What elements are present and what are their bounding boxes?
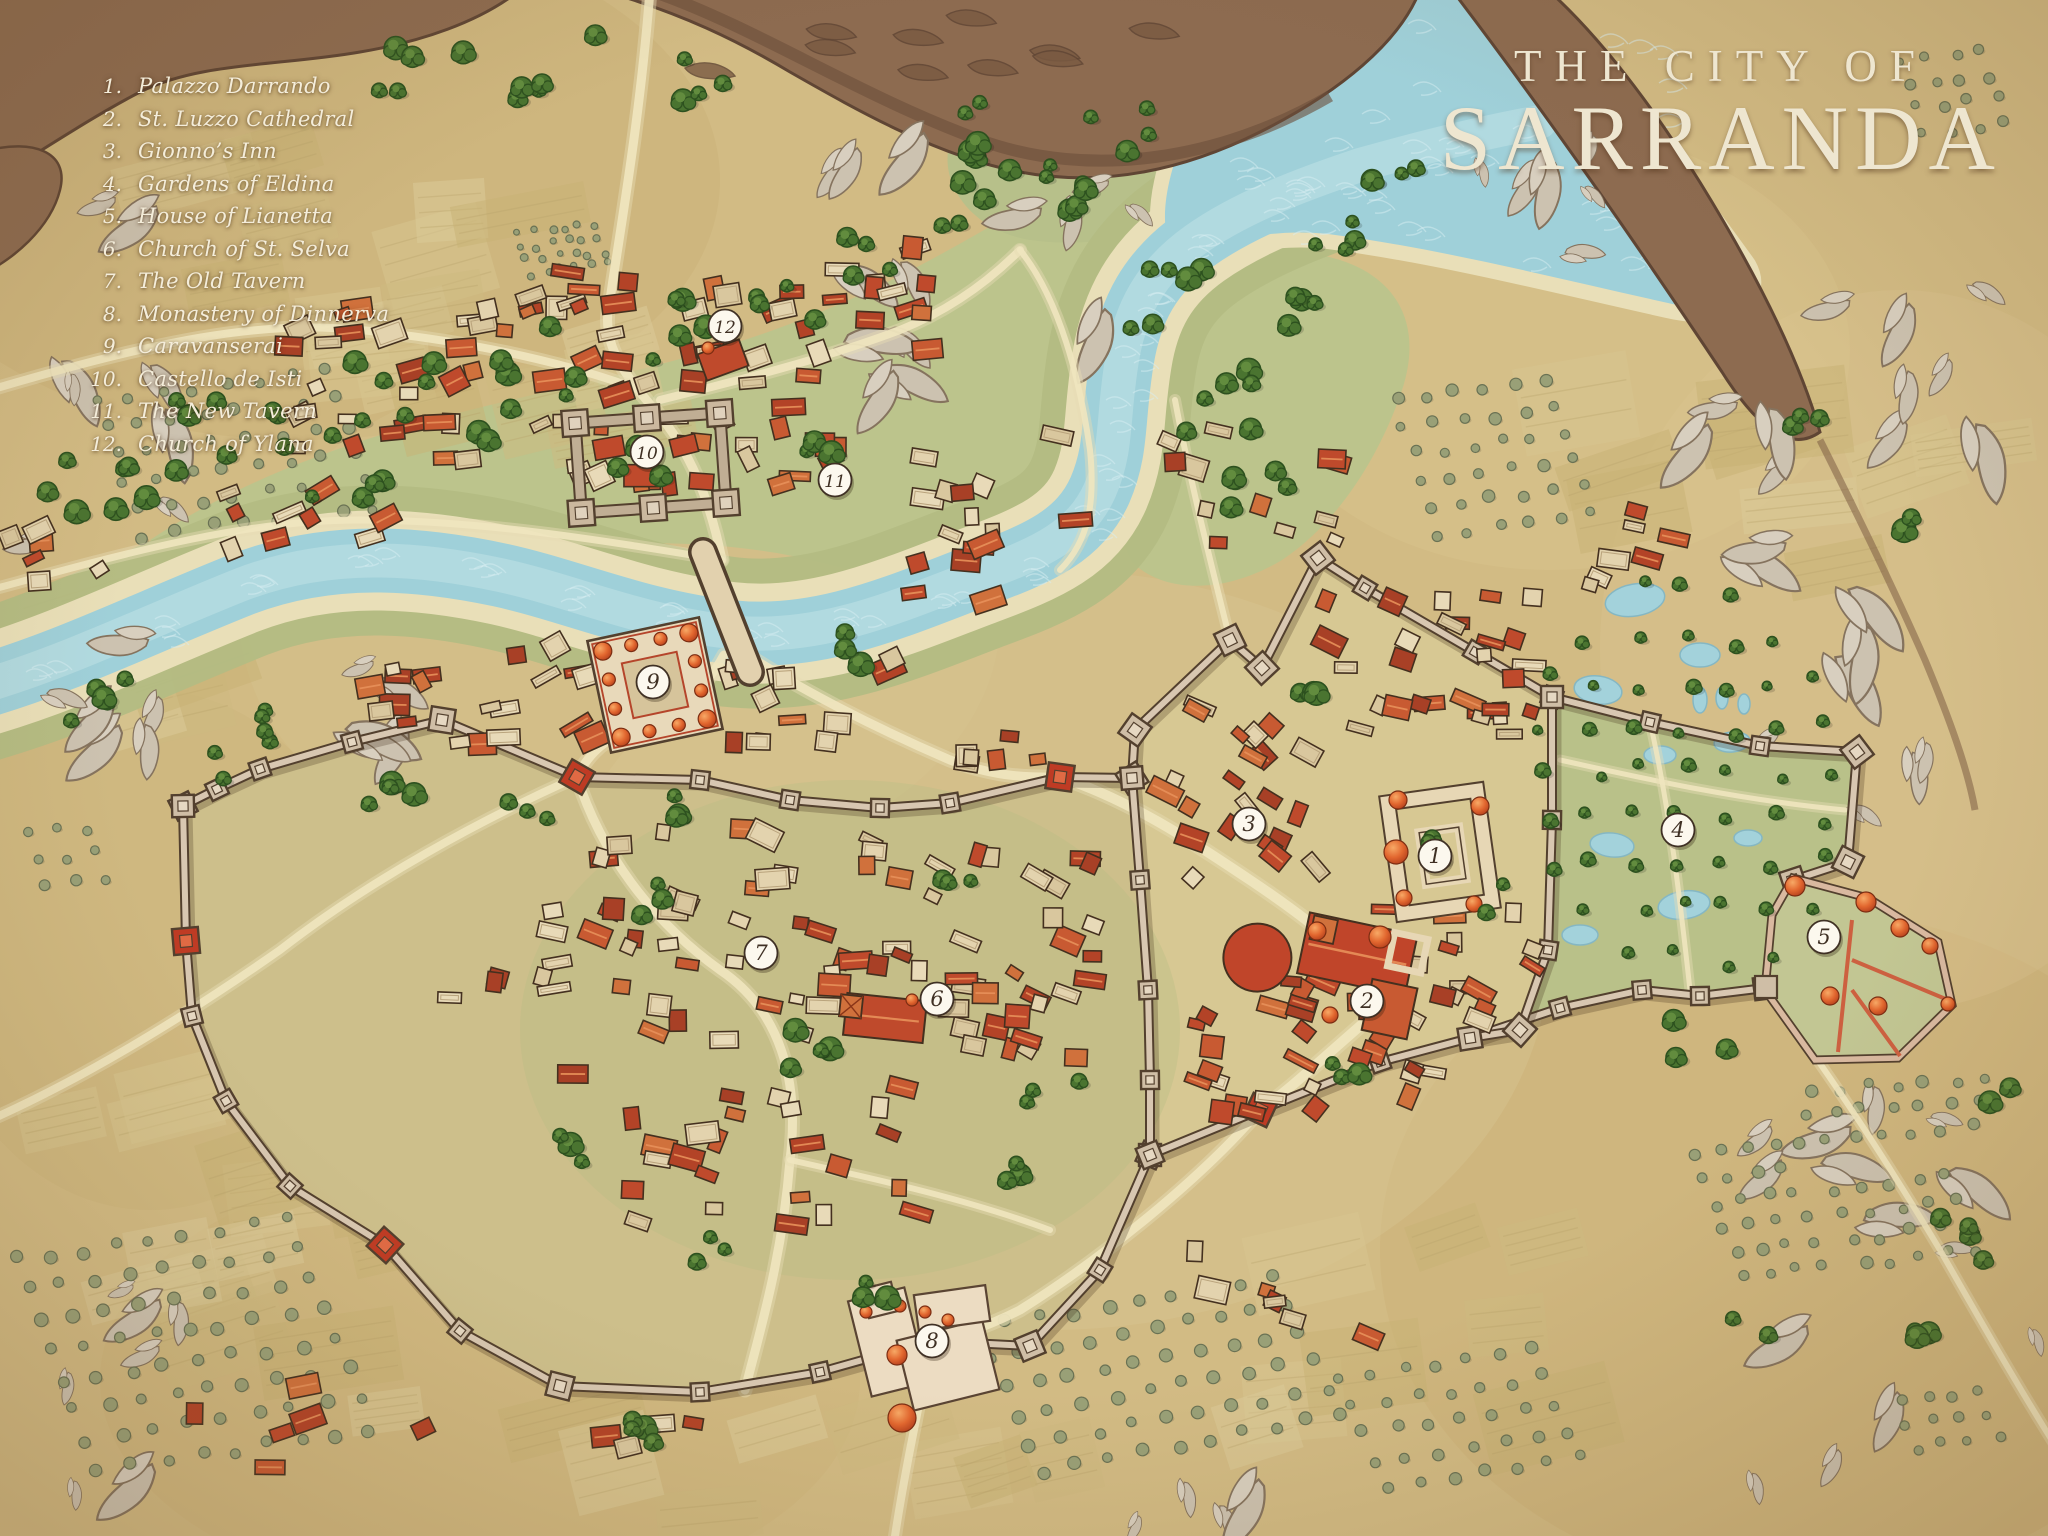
legend-item-number: 3. [84,139,138,163]
legend-item-label: Church of St. Selva [138,237,350,261]
legend-item: 3.Gionno’s Inn [84,139,389,172]
map-marker-number: 1 [1428,844,1441,868]
legend-item-number: 11. [84,399,138,423]
legend-item-label: Gionno’s Inn [138,139,277,163]
map-title-line1: THE CITY OF [1514,40,1928,92]
legend-item-number: 8. [84,302,138,326]
legend-item: 7.The Old Tavern [84,269,389,302]
legend-item-number: 1. [84,74,138,98]
legend-item-number: 2. [84,107,138,131]
map-canvas: 123456789101112 1.Palazzo Darrando 2.St.… [0,0,2048,1536]
map-title-line2: SARRANDA [1440,92,2002,186]
legend-item-label: St. Luzzo Cathedral [138,107,355,131]
map-marker-number: 9 [646,670,659,694]
map-marker-number: 12 [714,318,736,338]
legend-item: 4.Gardens of Eldina [84,172,389,205]
legend-item: 6.Church of St. Selva [84,237,389,270]
map-title: THE CITY OF SARRANDA [1440,40,2002,186]
legend-item-label: Monastery of Dinnerva [138,302,389,326]
legend-item: 1.Palazzo Darrando [84,74,389,107]
legend-item-label: Palazzo Darrando [138,74,331,98]
legend-item-label: The New Tavern [138,399,317,423]
map-legend: 1.Palazzo Darrando 2.St. Luzzo Cathedral… [84,74,389,464]
legend-item-label: Castello de Isti [138,367,303,391]
map-marker-number: 3 [1242,812,1255,836]
legend-item-number: 5. [84,204,138,228]
map-marker-number: 10 [636,444,658,464]
map-marker-number: 7 [754,941,768,965]
legend-item-label: Gardens of Eldina [138,172,335,196]
legend-item-label: The Old Tavern [138,269,306,293]
legend-item-number: 7. [84,269,138,293]
legend-item-number: 6. [84,237,138,261]
legend-item-number: 12. [84,432,138,456]
map-marker-number: 8 [925,1329,938,1353]
legend-item-number: 4. [84,172,138,196]
map-marker-number: 6 [930,987,943,1011]
map-marker-number: 4 [1670,818,1684,842]
legend-item: 10.Castello de Isti [84,367,389,400]
legend-item-label: Caravanserai [138,334,283,358]
map-marker-number: 11 [824,472,846,492]
legend-item: 8.Monastery of Dinnerva [84,302,389,335]
legend-item: 2.St. Luzzo Cathedral [84,107,389,140]
map-marker-number: 2 [1359,989,1373,1013]
legend-item-number: 10. [84,367,138,391]
legend-item: 12.Church of Ylana [84,432,389,465]
legend-item-label: Church of Ylana [138,432,314,456]
legend-item: 5.House of Lianetta [84,204,389,237]
legend-item-label: House of Lianetta [138,204,333,228]
legend-item: 11.The New Tavern [84,399,389,432]
legend-item-number: 9. [84,334,138,358]
legend-item: 9.Caravanserai [84,334,389,367]
map-marker-number: 5 [1817,925,1830,949]
